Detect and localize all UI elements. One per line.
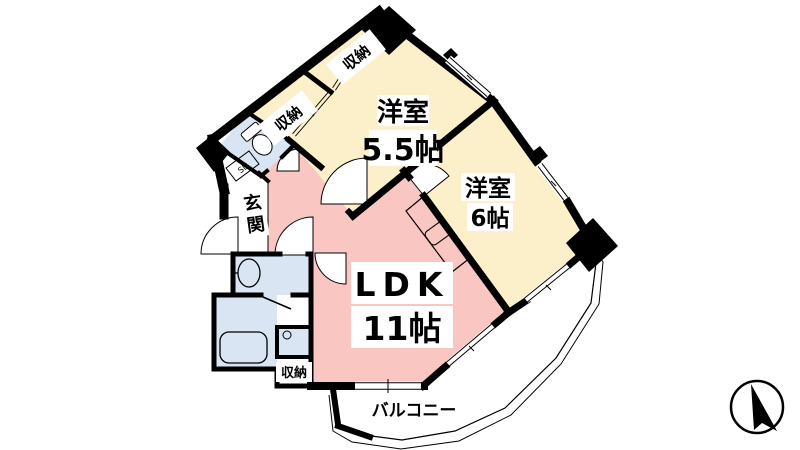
svg-text:収納: 収納: [281, 365, 307, 381]
label-closet-3: 収納: [276, 362, 312, 382]
floor-plan-svg: 収納 収納 洋室 5.5帖 洋室 6帖 LDK 11帖 バルコニー 玄 関 収納…: [0, 0, 800, 450]
label-balcony: バルコニー: [360, 397, 468, 422]
svg-text:バルコニー: バルコニー: [372, 401, 457, 421]
svg-text:洋室: 洋室: [465, 175, 511, 202]
svg-text:6帖: 6帖: [470, 206, 509, 232]
front-door-arc: [201, 217, 238, 254]
svg-text:玄: 玄: [242, 191, 263, 215]
north-arrow-icon: [731, 381, 783, 433]
svg-text:LDK: LDK: [355, 265, 450, 304]
laundry-space: [277, 327, 311, 357]
svg-text:11帖: 11帖: [363, 309, 442, 348]
label-entrance: 玄 関: [239, 188, 269, 239]
svg-text:洋室: 洋室: [377, 97, 429, 128]
floor-plan-page: 収納 収納 洋室 5.5帖 洋室 6帖 LDK 11帖 バルコニー 玄 関 収納…: [0, 0, 800, 450]
svg-text:5.5帖: 5.5帖: [361, 133, 444, 168]
svg-text:関: 関: [246, 214, 267, 237]
